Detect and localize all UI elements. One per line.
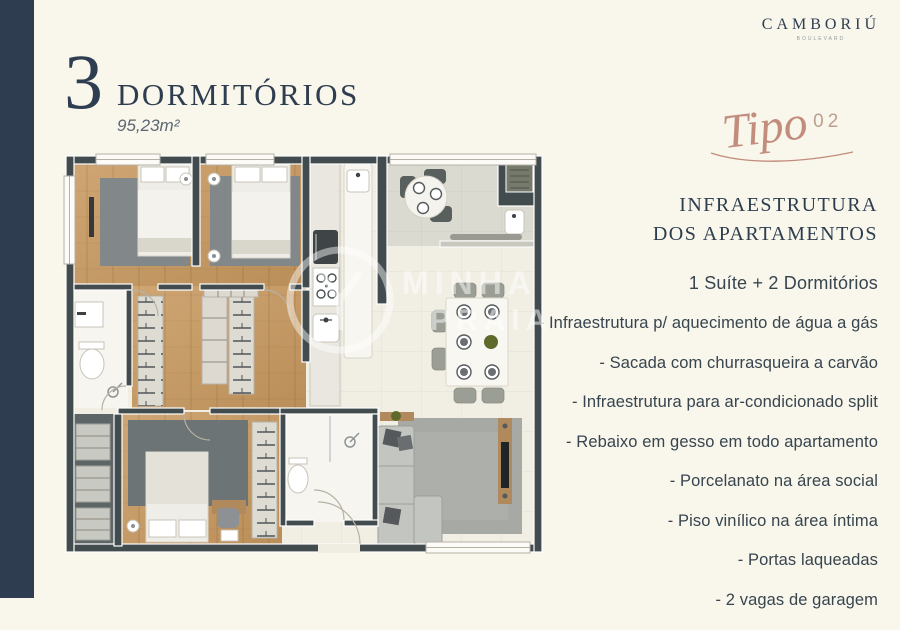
balcony-sink (505, 210, 524, 234)
plate (414, 183, 425, 194)
floor-plan-drawing: MINHA PRAIA (62, 152, 546, 556)
title-block: 3 DORMITÓRIOS 95,23m² (64, 48, 360, 136)
toilet (80, 349, 104, 379)
chair (454, 388, 476, 403)
brand-name: CAMBORIÚ (762, 16, 880, 34)
watermark-line2: PRAIA (430, 304, 546, 337)
toilet-tank (79, 342, 104, 349)
plate (418, 203, 429, 214)
watermark-line1: MINHA (402, 265, 537, 301)
living-room (378, 411, 522, 546)
pillow (179, 520, 206, 537)
balcony-rail (440, 241, 540, 247)
brand-tagline: BOULEVARD (762, 36, 880, 42)
paper (221, 530, 238, 541)
faucet (77, 312, 86, 315)
infrastructure-heading-line2: DOS APARTAMENTOS (653, 223, 878, 245)
entry-door-gap (318, 544, 360, 553)
throw-pillow (397, 435, 413, 451)
plant (391, 411, 401, 421)
pillow (149, 520, 176, 537)
left-accent-bar (0, 0, 34, 598)
plan-type-word: Tipo (719, 95, 810, 160)
bedroom-1 (89, 164, 192, 266)
centerpiece-plant (484, 335, 498, 349)
feature-item: - 2 vagas de garagem (448, 591, 878, 610)
brand-logo: CAMBORIÚ BOULEVARD (762, 16, 880, 42)
toilet (288, 465, 308, 493)
sofa-chaise (414, 496, 442, 544)
plate (431, 189, 442, 200)
infrastructure-heading-line1: INFRAESTRUTURA (679, 194, 878, 216)
desk-chair (217, 508, 239, 528)
service-units (76, 424, 110, 540)
pillow (262, 167, 287, 182)
title-area: 95,23m² (117, 116, 360, 136)
title-label: DORMITÓRIOS (117, 77, 360, 113)
bedroom-2 (208, 164, 300, 266)
title-number: 3 (64, 48, 103, 136)
throw-pillow (383, 507, 402, 526)
toilet-tank (289, 458, 307, 464)
chair (482, 388, 504, 403)
tv-screen (501, 442, 509, 488)
chair (432, 348, 447, 370)
floor-plan: MINHA PRAIA (62, 152, 546, 556)
shelf (89, 197, 94, 237)
bench (450, 234, 522, 240)
pillow (235, 167, 260, 182)
plan-type-number: 02 (813, 111, 842, 132)
plan-type-script: Tipo02 (692, 100, 872, 165)
pillow (141, 167, 164, 182)
